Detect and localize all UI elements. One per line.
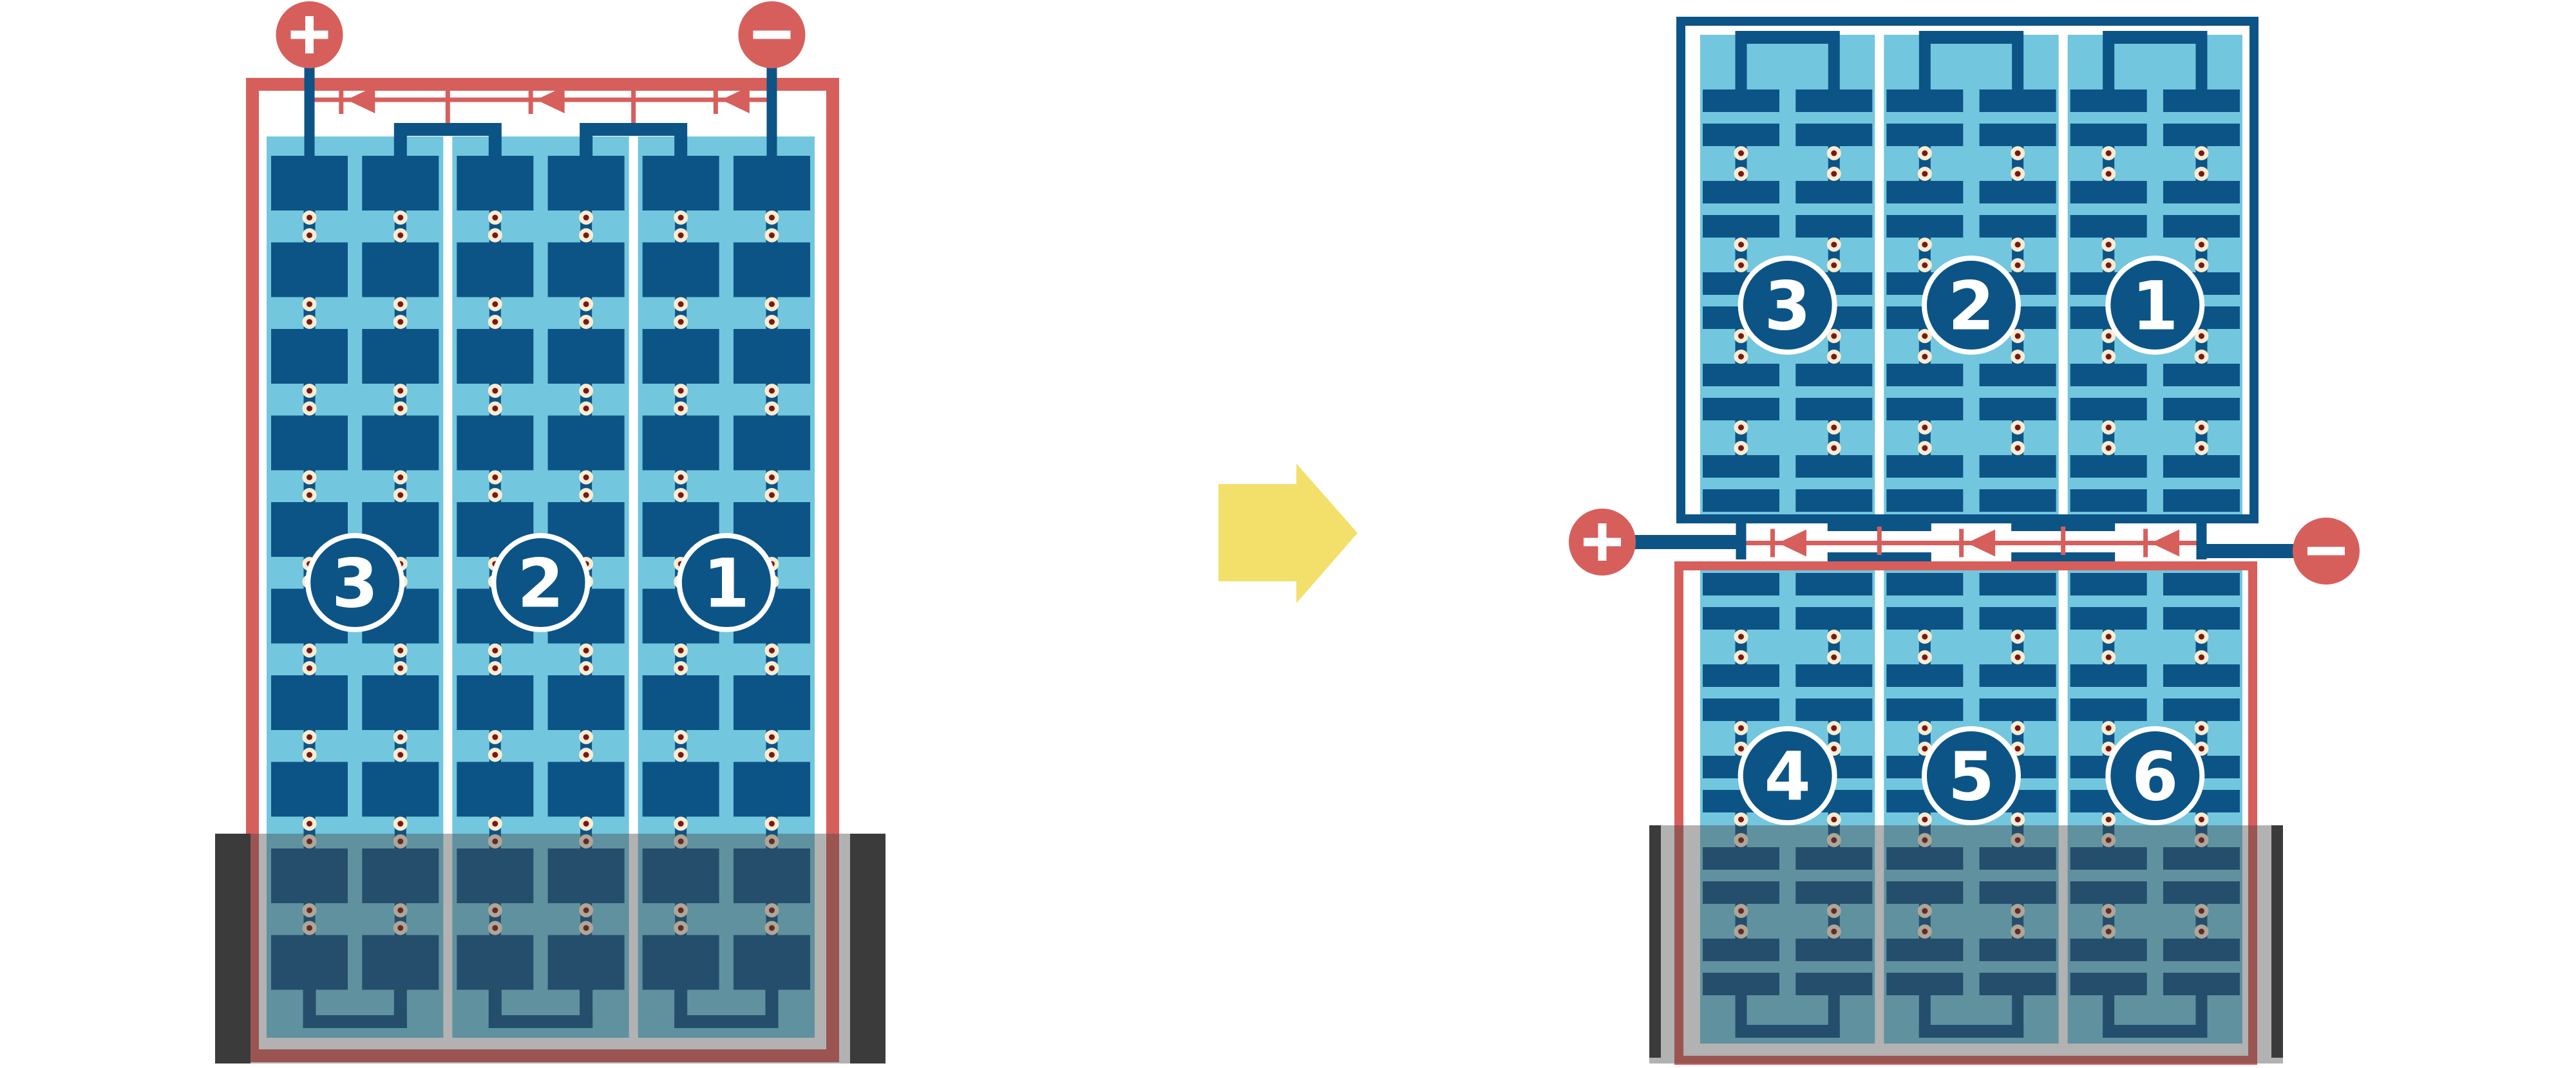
bridge-leg [580,136,592,156]
diode-tap-connector [631,90,636,126]
solder-dot [1918,441,1932,455]
solder-dot-core [2015,445,2021,451]
solar-cell [2163,124,2240,146]
solder-dot-core [2199,263,2204,268]
solar-cell [2070,455,2147,478]
cell-link [2011,238,2025,272]
string-top-bus [2103,31,2207,44]
cell-link [674,297,688,330]
solder-dot-core [1738,333,1744,339]
solder-dot [674,297,688,312]
cell-link [1918,146,1932,181]
solder-dot [674,402,688,416]
solder-dot [2011,721,2025,735]
solder-dot [674,661,688,675]
solder-dot-core [2106,634,2112,640]
solar-cell [1980,89,2056,112]
solder-dot [1734,238,1748,252]
solder-dot-core [2106,445,2112,451]
solder-dot-core [678,648,684,653]
cell-link [764,644,779,676]
solder-dot-core [2015,263,2021,268]
bridge-leg [489,136,502,156]
shade-region [215,834,885,1063]
solder-dot [764,661,779,675]
solder-dot-core [678,301,684,307]
solar-cell [1886,364,1963,386]
solder-dot [303,748,317,762]
solar-cell [2163,489,2240,512]
cell-link [303,297,317,330]
solder-dot [303,315,317,329]
solder-dot [2101,630,2116,644]
solder-dot-core [1738,634,1744,640]
solder-dot [764,402,779,416]
string-number-badge: 2 [493,536,587,630]
solar-cell [1886,489,1963,512]
solder-dot-core [678,492,684,498]
solar-cell [2070,664,2147,687]
diode-arrow [1778,530,1806,557]
cell-link [2194,630,2208,664]
solder-dot-core [307,821,312,827]
positive-terminal [276,1,343,68]
solder-dot-core [2015,655,2021,660]
cell-link [1918,420,1932,455]
solder-dot-core [2199,817,2204,823]
solar-cell [1886,398,1963,420]
solder-dot-core [1831,263,1837,268]
cell-link [303,730,317,762]
string-number-label: 1 [703,544,750,623]
solder-dot [674,488,688,502]
solder-dot-core [397,232,403,238]
solar-cell [1703,181,1779,203]
solar-cell [1980,124,2056,146]
solder-dot-core [397,492,403,498]
solar-cell [457,156,533,211]
solder-dot-core [678,752,684,758]
solder-dot [764,748,779,762]
solar-cell [643,675,719,730]
solar-cell [2070,215,2147,238]
solar-cell [1886,215,1963,238]
solar-cell [271,762,348,817]
cell-link [1734,238,1748,272]
cell-link [674,211,688,243]
solar-cell [1703,455,1779,478]
solar-cell [1980,607,2056,630]
solder-dot [1827,420,1841,435]
solder-dot-core [583,232,589,238]
solder-dot-core [583,648,589,653]
solder-dot-core [1738,151,1744,156]
solder-dot-core [2106,655,2112,660]
solder-dot [2011,350,2025,364]
solder-dot [2101,167,2116,181]
solder-dot [2101,812,2116,827]
solar-cell [2163,573,2240,595]
solder-dot [303,402,317,416]
solder-dot [2011,441,2025,455]
cell-link [2101,238,2116,272]
solder-dot-core [2199,746,2204,752]
solder-dot-core [307,301,312,307]
solder-dot-core [2015,333,2021,339]
cell-link [488,211,502,243]
diode-cathode-bar [1959,529,1964,557]
string-number-label: 3 [332,544,378,623]
solder-dot [579,488,593,502]
solar-cell [2163,181,2240,203]
solder-dot-core [1922,151,1927,156]
solder-dot [764,297,779,312]
cell-link [488,297,502,330]
solar-cell [362,329,439,384]
solder-dot-core [492,232,498,238]
string-top-leg [2195,44,2207,89]
solar-cell [2070,398,2147,420]
solder-dot-core [1831,171,1837,177]
solder-dot-core [583,735,589,740]
solder-dot-core [1738,354,1744,360]
solar-cell [1795,215,1872,238]
solder-dot [393,644,408,658]
solder-dot-core [678,666,684,671]
shade-overlay [1649,825,2283,1063]
cell-link [674,730,688,762]
solder-dot-core [1738,445,1744,451]
solder-dot-core [397,319,403,325]
solder-dot [2011,420,2025,435]
solder-dot-core [583,474,589,480]
solar-cell [548,762,625,817]
solder-dot [579,229,593,243]
solar-cell [548,329,625,384]
solder-dot-core [583,319,589,325]
solder-dot-core [307,215,312,221]
solder-dot-core [769,821,775,827]
diode-tap-connector [446,90,450,126]
solar-cell [1886,607,1963,630]
negative-terminal [738,1,805,68]
solder-dot [2011,167,2025,181]
right-half-cut-module: 342516 [1569,21,2360,1063]
cell-link [303,211,317,243]
cell-link [1827,329,1841,364]
solder-dot [488,471,502,485]
solar-cell [1886,455,1963,478]
solder-dot-core [1831,242,1837,248]
solder-dot [1918,167,1932,181]
solar-cell [1795,698,1872,721]
solder-dot-core [2015,817,2021,823]
solder-dot [579,748,593,762]
solar-cell [1980,398,2056,420]
solar-cell [1795,364,1872,386]
solar-cell [1795,664,1872,687]
solder-dot-core [1922,726,1927,731]
solder-dot [1734,441,1748,455]
solder-dot-core [2106,171,2112,177]
solder-dot-core [1738,655,1744,660]
solder-dot [2101,146,2116,160]
solder-dot-core [1831,726,1837,731]
solder-dot-core [2199,726,2204,731]
cell-link [579,384,593,416]
solar-cell [362,675,439,730]
solar-cell [271,675,348,730]
transform-arrow-icon [1218,464,1358,603]
solder-dot-core [397,215,403,221]
solder-dot [1734,146,1748,160]
string-number-badge: 1 [679,536,773,630]
solder-dot [303,384,317,398]
cell-link [393,384,408,416]
solder-dot-core [2199,425,2204,431]
solder-dot [2194,812,2208,827]
solder-dot-core [1922,242,1927,248]
solder-dot [393,488,408,502]
string-top-leg [2012,44,2023,89]
cell-link [2011,329,2025,364]
diode-cathode-bar [2143,529,2148,557]
solder-dot-core [583,492,589,498]
solder-dot [1827,812,1841,827]
solder-dot [2194,167,2208,181]
solder-dot [393,229,408,243]
cell-link [579,471,593,503]
solar-cell [1703,124,1779,146]
string-top-leg [2103,44,2114,89]
solder-dot [764,229,779,243]
negative-wire [2196,544,2296,558]
plus-icon [305,16,314,53]
solar-cell [1795,181,1872,203]
solar-cell [2163,215,2240,238]
cell-link [2194,146,2208,181]
solar-cell [1886,664,1963,687]
cell-link [393,644,408,676]
solder-dot-core [2015,151,2021,156]
solar-cell [271,156,348,211]
solder-dot-core [1738,746,1744,752]
solar-cell [1886,181,1963,203]
solar-cell [457,762,533,817]
solder-dot [393,384,408,398]
solar-cell [643,243,719,297]
string-number-badge: 5 [1924,729,2018,823]
solder-dot-core [2106,333,2112,339]
solder-dot-core [307,735,312,740]
solder-dot-core [769,752,775,758]
solder-dot [2194,630,2208,644]
solder-dot [2011,812,2025,827]
solder-dot [488,229,502,243]
solder-dot [764,730,779,744]
cell-link [2011,146,2025,181]
cell-link [674,384,688,416]
solar-cell [362,762,439,817]
cell-link [2194,329,2208,364]
solar-cell [457,329,533,384]
solder-dot-core [397,752,403,758]
cell-link [764,211,779,243]
solder-dot [393,211,408,225]
diode-arrow [2151,530,2179,557]
solder-dot [1918,630,1932,644]
diode-cathode-bar [714,86,718,114]
solar-cell [1886,573,1963,595]
solar-cell [1980,489,2056,512]
solar-cell [271,329,348,384]
solar-cell [1886,89,1963,112]
solder-dot-core [1831,746,1837,752]
solder-dot [488,488,502,502]
solar-cell [2070,364,2147,386]
solder-dot-core [1922,333,1927,339]
solar-cell [1703,573,1779,595]
solder-dot [579,384,593,398]
solar-cell [2163,398,2240,420]
solder-dot [1734,630,1748,644]
string-number-badge: 4 [1741,729,1835,823]
solder-dot [764,817,779,831]
solder-dot-core [2199,354,2204,360]
solder-dot-core [307,406,312,411]
solar-cell [1980,181,2056,203]
solar-cell [1703,607,1779,630]
solder-dot [303,297,317,312]
solder-dot [1734,812,1748,827]
solder-dot [1734,420,1748,435]
solder-dot [2011,146,2025,160]
solder-dot [2101,258,2116,272]
string-top-leg [1736,44,1747,89]
solar-cell [643,416,719,471]
solder-dot [2194,238,2208,252]
solar-cell [2163,698,2240,721]
solder-dot [1827,650,1841,664]
string-top-bus [1919,31,2023,44]
string-top-leg [1828,44,1840,89]
solder-dot-core [583,301,589,307]
solar-cell [2163,89,2240,112]
solder-dot-core [1738,242,1744,248]
solder-dot-core [678,406,684,411]
solder-dot [2194,146,2208,160]
solar-cell [1795,398,1872,420]
cell-link [579,730,593,762]
solder-dot [303,730,317,744]
solder-dot-core [2106,746,2112,752]
solder-dot-core [492,735,498,740]
solder-dot-core [397,735,403,740]
solder-dot [674,748,688,762]
cell-link [2101,630,2116,664]
solder-dot [1827,167,1841,181]
negative-terminal [2293,518,2360,585]
solder-dot-core [2106,151,2112,156]
diode-cathode-bar [529,86,533,114]
solder-dot-core [397,388,403,394]
shade-region [1649,825,2283,1063]
solder-dot [1827,258,1841,272]
negative-bus [2196,514,2206,559]
solder-dot-core [769,492,775,498]
solder-dot [393,748,408,762]
solder-dot [674,817,688,831]
solder-dot-core [678,319,684,325]
solder-dot-core [1738,726,1744,731]
solder-dot-core [397,666,403,671]
solar-cell [548,156,625,211]
cell-link [1918,630,1932,664]
solder-dot-core [1922,817,1927,823]
solder-dot-core [2199,634,2204,640]
solder-dot-core [2199,333,2204,339]
solder-dot [488,661,502,675]
solder-dot [2101,721,2116,735]
solder-dot-core [769,232,775,238]
solder-dot-core [1738,817,1744,823]
string-number-badge: 1 [2108,258,2202,352]
solar-cell [643,762,719,817]
string-number-label: 1 [2132,267,2178,345]
string-top-bus [1736,31,1840,44]
solar-cell [548,243,625,297]
cell-link [2194,420,2208,455]
solder-dot-core [2015,726,2021,731]
cell-link [764,384,779,416]
solar-cell [2070,698,2147,721]
solder-dot [1918,350,1932,364]
solar-cell [643,329,719,384]
cell-link [2101,146,2116,181]
shade-overlay [215,834,885,1063]
solder-dot-core [1738,425,1744,431]
solar-cell [271,416,348,471]
cell-link [303,471,317,503]
solder-dot-core [492,492,498,498]
solder-dot [393,297,408,312]
diode-tap-connector [1877,527,1882,555]
cell-link [764,730,779,762]
solder-dot [393,402,408,416]
bridge-bus [394,123,502,136]
solar-cell [362,156,439,211]
solder-dot [1918,650,1932,664]
solder-dot-core [769,735,775,740]
solder-dot-core [769,215,775,221]
solder-dot-core [1738,171,1744,177]
solder-dot [2101,650,2116,664]
solder-dot [674,730,688,744]
solder-dot [488,748,502,762]
solar-cell [734,416,810,471]
cell-link [1827,420,1841,455]
solder-dot-core [307,388,312,394]
solder-dot [303,229,317,243]
solder-dot-core [769,474,775,480]
solder-dot-core [307,474,312,480]
solder-dot-core [1922,171,1927,177]
cell-link [488,730,502,762]
solder-dot-core [1738,263,1744,268]
solder-dot [1827,146,1841,160]
solder-dot [488,315,502,329]
solder-dot-core [307,492,312,498]
